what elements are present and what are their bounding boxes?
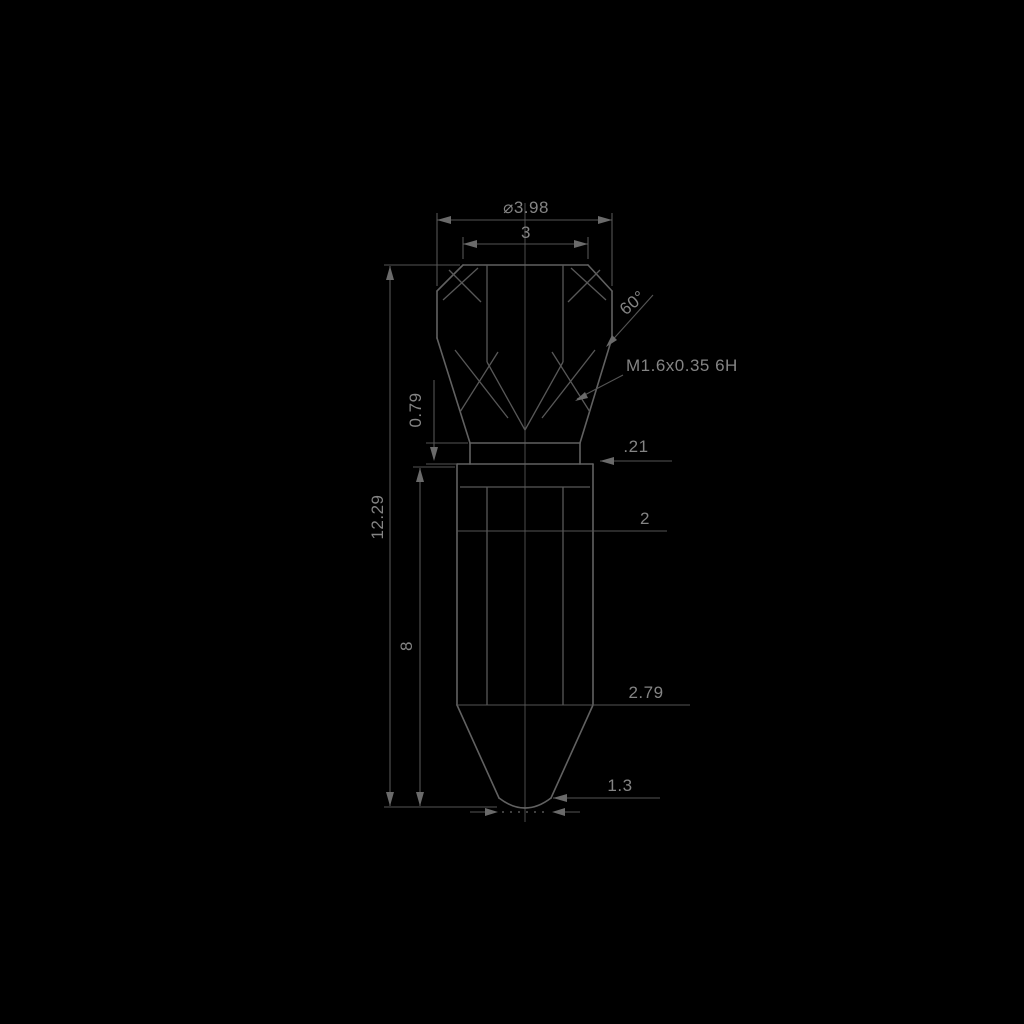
dim-tip-diameter: 1.3 [607,776,632,795]
dim-overall-length: 12.29 [368,494,387,539]
dim-top-width: 3 [521,223,531,242]
dim-taper-length: 2.79 [628,683,663,702]
dim-body-length: 8 [397,641,416,651]
technical-drawing: ⌀3.98 3 60° M1.6x0.35 6H 0.79 .21 2 12.2… [0,0,1024,1024]
dim-neck-length: 0.79 [406,392,425,427]
thread-callout: M1.6x0.35 6H [626,356,738,375]
dim-step: .21 [623,437,648,456]
dim-cone-angle: 60° [616,287,649,319]
dim-overall-diameter: ⌀3.98 [503,198,549,217]
dim-body-diameter: 2 [640,509,650,528]
drawing-canvas: ⌀3.98 3 60° M1.6x0.35 6H 0.79 .21 2 12.2… [0,0,1024,1024]
